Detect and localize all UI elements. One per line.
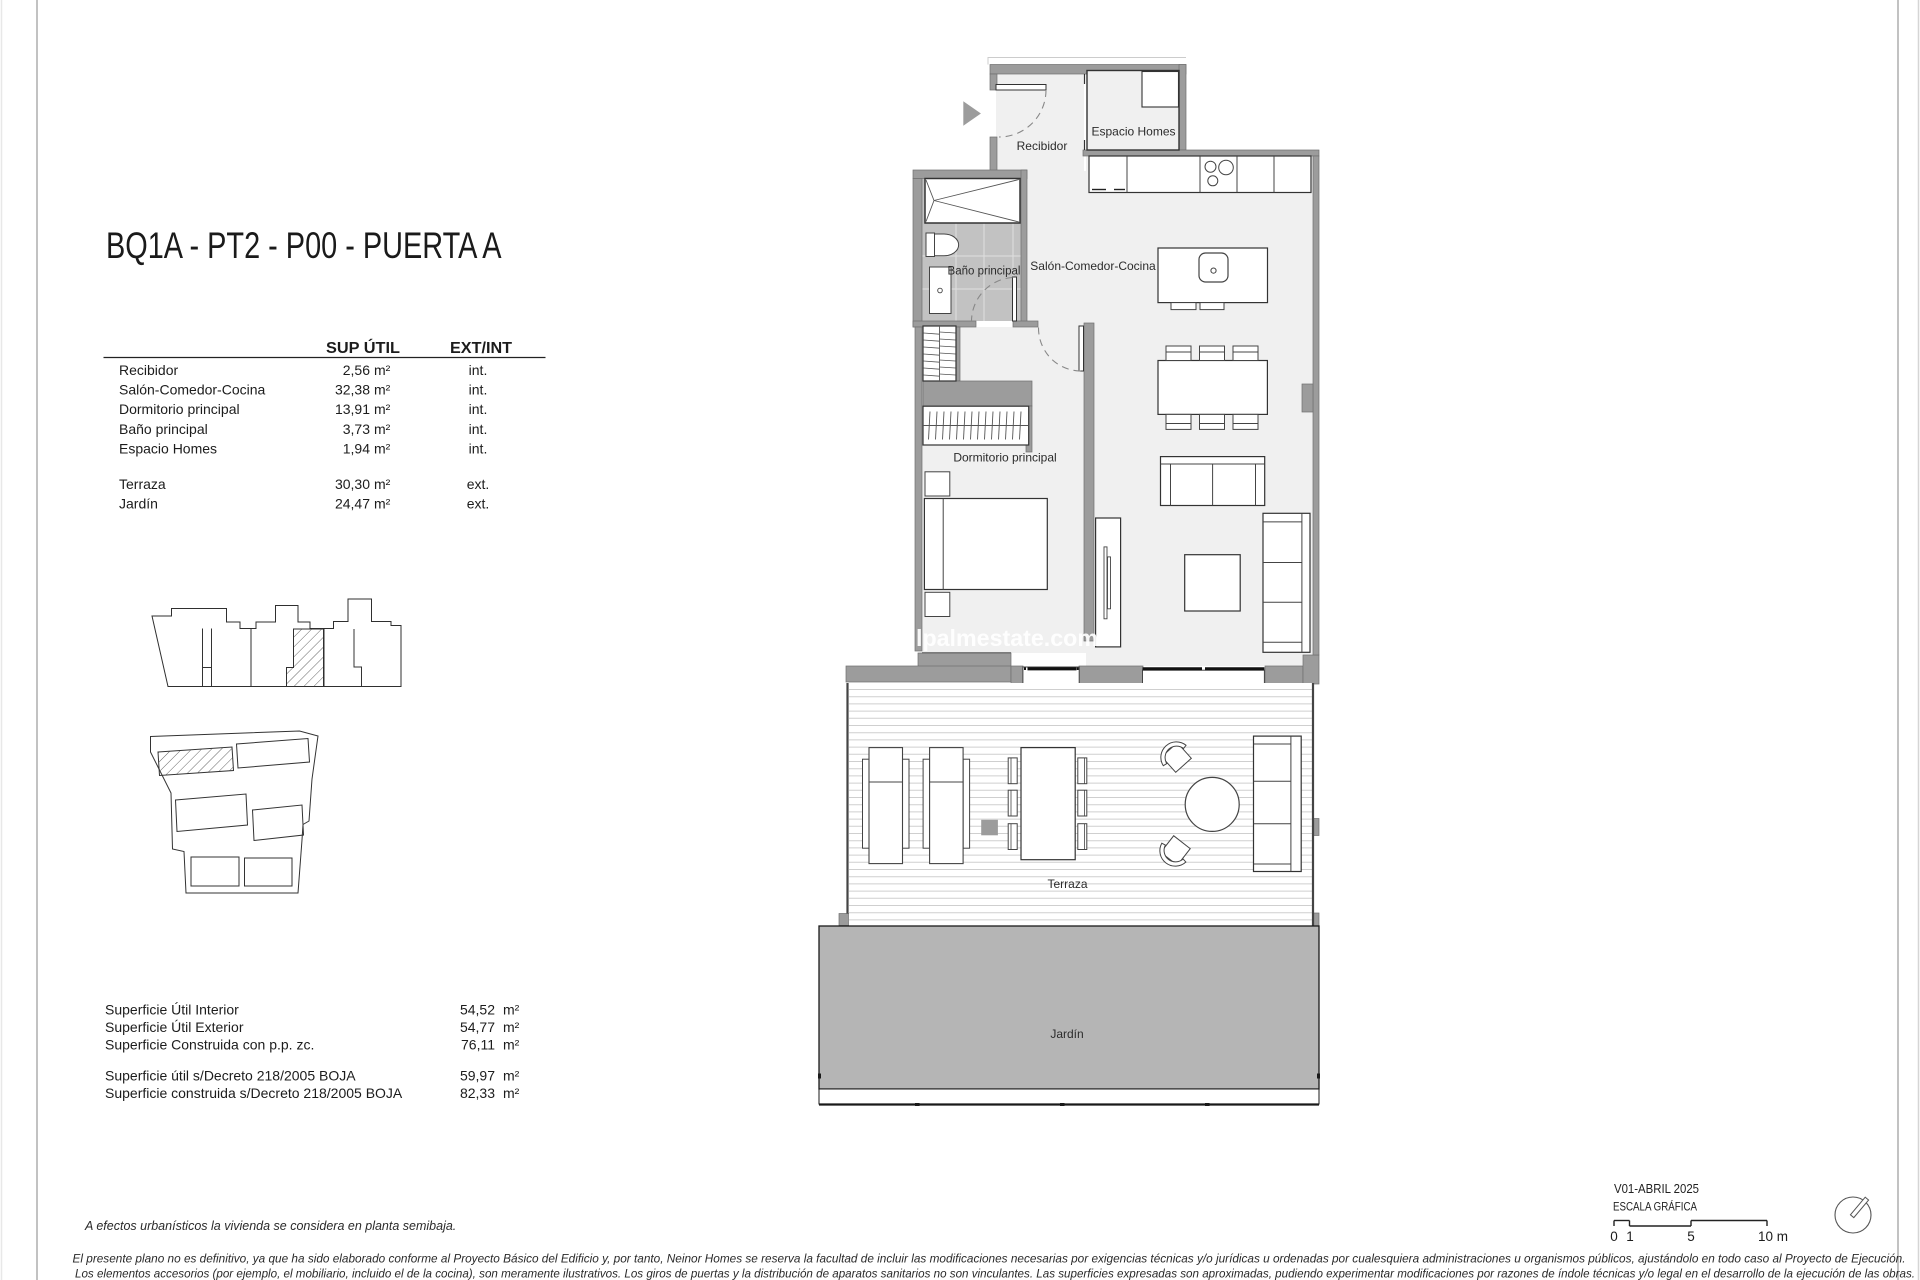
svg-text:SUP ÚTIL: SUP ÚTIL <box>326 339 400 357</box>
svg-text:m²: m² <box>503 1068 520 1084</box>
svg-text:m²: m² <box>374 421 391 437</box>
svg-text:EXT/INT: EXT/INT <box>450 340 513 357</box>
svg-text:m²: m² <box>374 401 391 417</box>
svg-text:Dormitorio principal: Dormitorio principal <box>953 451 1056 465</box>
svg-text:Terraza: Terraza <box>119 476 166 492</box>
svg-text:54,77: 54,77 <box>460 1019 495 1035</box>
svg-text:Terraza: Terraza <box>1047 877 1087 891</box>
svg-text:int.: int. <box>469 421 488 437</box>
svg-text:int.: int. <box>469 401 488 417</box>
svg-text:int.: int. <box>469 362 488 378</box>
svg-text:m²: m² <box>503 1001 520 1017</box>
svg-text:Salón-Comedor-Cocina: Salón-Comedor-Cocina <box>119 382 266 398</box>
svg-text:int.: int. <box>469 440 488 456</box>
svg-text:m²: m² <box>374 440 391 456</box>
svg-text:0: 0 <box>1610 1229 1618 1244</box>
svg-text:30,30: 30,30 <box>335 476 370 492</box>
svg-text:76,11: 76,11 <box>461 1037 495 1053</box>
svg-text:24,47: 24,47 <box>335 495 370 511</box>
svg-text:82,33: 82,33 <box>460 1085 495 1101</box>
svg-text:Espacio Homes: Espacio Homes <box>119 440 217 456</box>
svg-text:Superficie útil s/Decreto 218/: Superficie útil s/Decreto 218/2005 BOJA <box>105 1068 356 1084</box>
svg-text:5: 5 <box>1687 1229 1695 1244</box>
svg-text:El presente plano no es defini: El presente plano no es definitivo, ya q… <box>73 1252 1906 1266</box>
svg-text:m²: m² <box>503 1019 520 1035</box>
svg-text:Jardín: Jardín <box>119 495 158 511</box>
svg-text:54,52: 54,52 <box>460 1001 495 1017</box>
svg-text:BQ1A - PT2 - P00 - PUERTA A: BQ1A - PT2 - P00 - PUERTA A <box>106 226 502 267</box>
svg-text:Baño principal: Baño principal <box>119 421 208 437</box>
svg-text:3,73: 3,73 <box>343 421 370 437</box>
svg-text:ext.: ext. <box>467 476 490 492</box>
svg-text:m²: m² <box>503 1085 520 1101</box>
svg-text:10 m: 10 m <box>1758 1229 1788 1244</box>
svg-text:59,97: 59,97 <box>460 1068 495 1084</box>
svg-text:Dormitorio principal: Dormitorio principal <box>119 401 240 417</box>
svg-text:Recibidor: Recibidor <box>1017 139 1068 153</box>
svg-text:Superficie Construida con p.p.: Superficie Construida con p.p. zc. <box>105 1037 314 1053</box>
svg-text:Superficie Útil Exterior: Superficie Útil Exterior <box>105 1019 244 1035</box>
svg-text:1: 1 <box>1626 1229 1634 1244</box>
svg-text:A efectos urbanísticos la vivi: A efectos urbanísticos la vivienda se co… <box>84 1219 456 1233</box>
svg-text:int.: int. <box>469 382 488 398</box>
svg-text:V01-ABRIL 2025: V01-ABRIL 2025 <box>1614 1182 1699 1196</box>
svg-text:m²: m² <box>503 1037 520 1053</box>
svg-text:ext.: ext. <box>467 495 490 511</box>
svg-text:m²: m² <box>374 382 391 398</box>
svg-text:m²: m² <box>374 495 391 511</box>
svg-text:ESCALA GRÁFICA: ESCALA GRÁFICA <box>1613 1201 1697 1214</box>
svg-text:32,38: 32,38 <box>335 382 370 398</box>
svg-text:lpalmestate.com: lpalmestate.com <box>916 625 1098 651</box>
svg-text:m²: m² <box>374 476 391 492</box>
svg-text:13,91: 13,91 <box>335 401 370 417</box>
svg-text:Los elementos accesorios (por: Los elementos accesorios (por ejemplo, e… <box>75 1267 1915 1280</box>
svg-text:1,94: 1,94 <box>343 440 370 456</box>
svg-text:m²: m² <box>374 362 391 378</box>
svg-text:Espacio Homes: Espacio Homes <box>1091 125 1175 139</box>
svg-text:Baño principal: Baño principal <box>948 266 1021 278</box>
svg-text:Salón-Comedor-Cocina: Salón-Comedor-Cocina <box>1030 259 1156 273</box>
svg-text:2,56: 2,56 <box>343 362 370 378</box>
svg-text:Superficie construida s/Decret: Superficie construida s/Decreto 218/2005… <box>105 1085 403 1101</box>
svg-text:Recibidor: Recibidor <box>119 362 178 378</box>
svg-text:Jardín: Jardín <box>1050 1027 1083 1041</box>
svg-text:Superficie Útil Interior: Superficie Útil Interior <box>105 1001 239 1017</box>
